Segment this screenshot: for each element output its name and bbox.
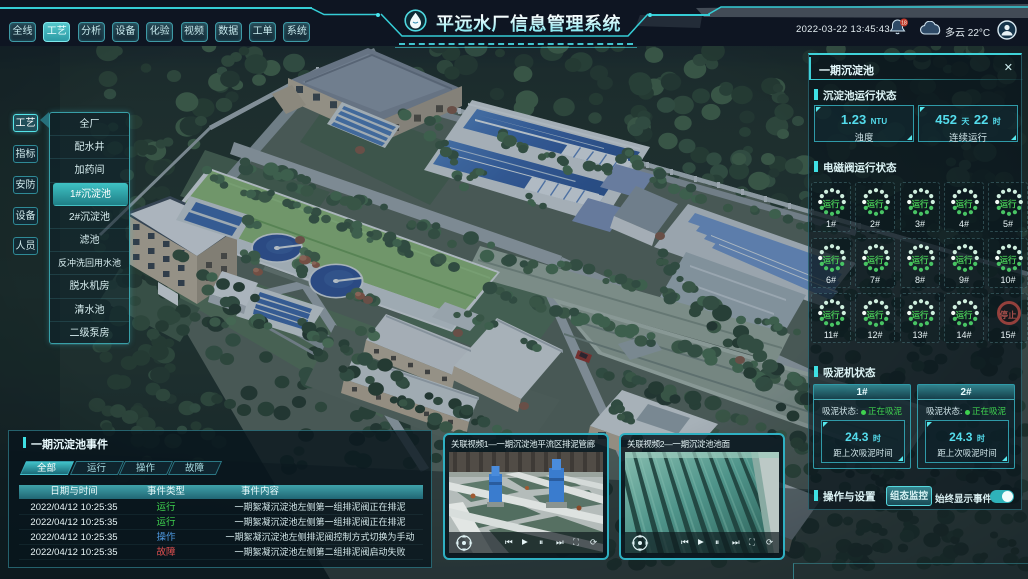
svg-text:18: 18: [901, 20, 907, 26]
